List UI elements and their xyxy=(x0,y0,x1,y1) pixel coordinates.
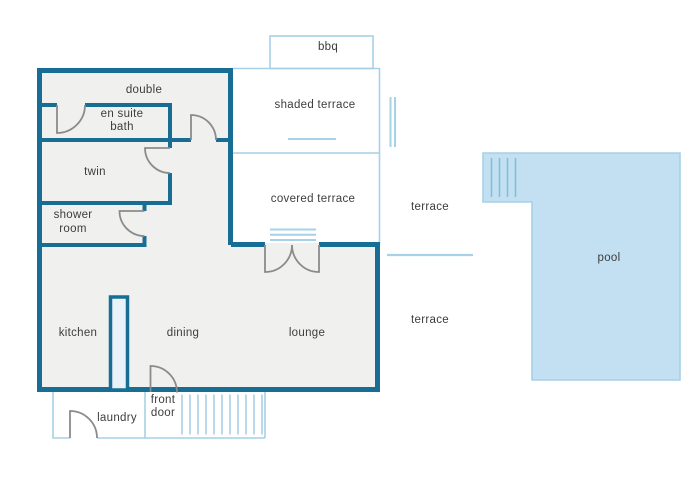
house-interior xyxy=(39,70,378,390)
en-suite-bath-label: en suite xyxy=(101,108,144,120)
stairs-hatching xyxy=(182,395,262,435)
twin-room-label: twin xyxy=(84,166,106,178)
terrace-upper-label: terrace xyxy=(411,201,449,213)
lounge-label: lounge xyxy=(289,327,325,339)
shower-room-label: shower xyxy=(54,209,93,221)
en-suite-bath-label-line2: bath xyxy=(110,121,134,133)
laundry-door-arc xyxy=(70,411,97,438)
dining-label: dining xyxy=(167,327,200,339)
kitchen-label: kitchen xyxy=(59,327,98,339)
front-door-label-line2: door xyxy=(151,407,175,419)
pool-area xyxy=(483,153,680,380)
covered-terrace-label: covered terrace xyxy=(271,193,355,205)
laundry-label: laundry xyxy=(97,412,137,424)
pool-label: pool xyxy=(598,252,621,264)
double-room-label: double xyxy=(126,84,162,96)
bbq-label: bbq xyxy=(318,41,338,53)
terrace-lower-label: terrace xyxy=(411,314,449,326)
terrace-step-marks xyxy=(391,97,396,147)
shower-room-label-line2: room xyxy=(59,223,86,235)
kitchen-island-wall xyxy=(111,297,128,390)
front-door-label: front xyxy=(151,394,176,406)
floor-plan: bbq double shaded terrace en suite bath … xyxy=(0,0,700,500)
shaded-terrace-label: shaded terrace xyxy=(275,99,356,111)
pool-shape xyxy=(483,153,680,380)
